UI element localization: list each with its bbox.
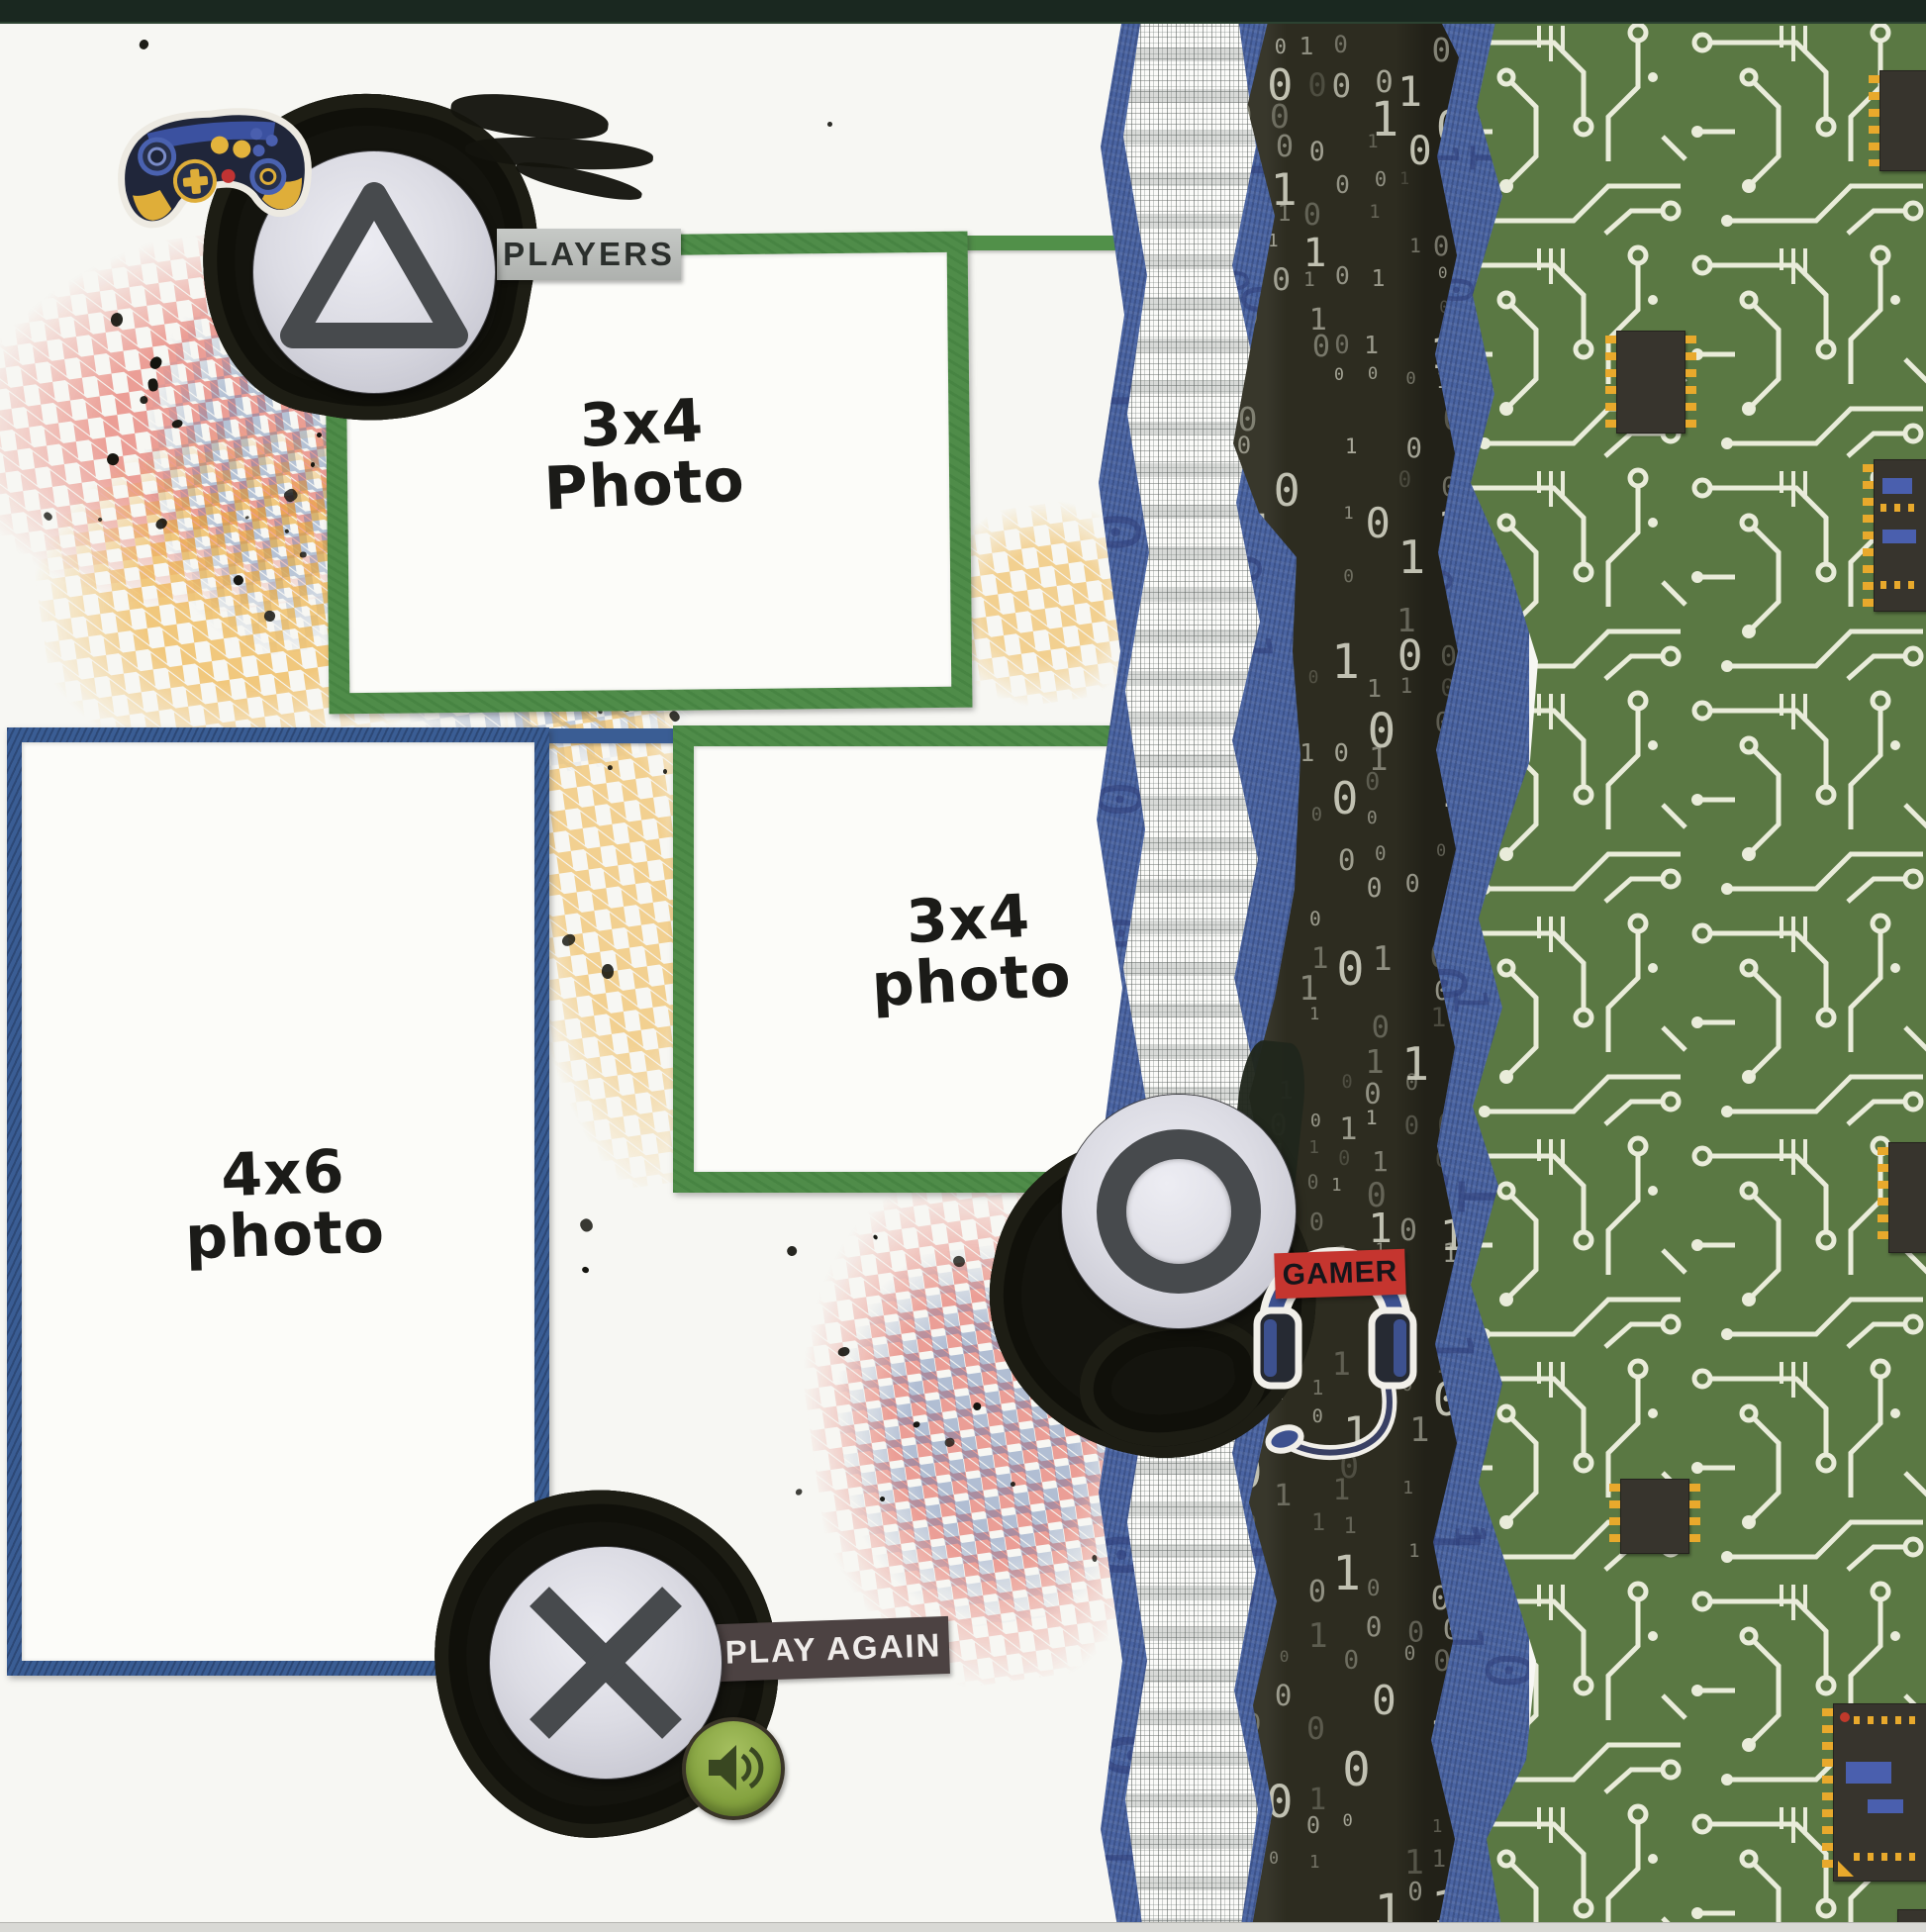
speaker-button (682, 1717, 785, 1820)
chip (1888, 1142, 1926, 1253)
photo-label-3x4-second: 3x4photo (799, 880, 1141, 1020)
play-again-tag-label: PLAY AGAIN (724, 1626, 942, 1672)
blue-ribbon (534, 728, 693, 743)
headphones-icon (1239, 1200, 1432, 1472)
x-button-icon (512, 1569, 700, 1757)
chip (1833, 1703, 1926, 1882)
page-bottom-edge (0, 1922, 1926, 1932)
speaker-icon (703, 1738, 764, 1799)
circle-button-icon (1097, 1129, 1261, 1294)
players-tag-label: PLAYERS (503, 236, 675, 273)
photo-label-3x4-top: 3x4Photo (472, 385, 814, 524)
chip (1616, 331, 1685, 434)
photo-mat-4x6: 4x6photo (7, 727, 549, 1676)
gamer-tag-label: GAMER (1282, 1255, 1398, 1293)
game-controller-icon (105, 85, 327, 253)
chip (1874, 459, 1926, 612)
gamer-tag: GAMER (1274, 1249, 1406, 1300)
players-tag: PLAYERS (497, 229, 681, 280)
green-ribbon (940, 236, 1138, 250)
page-top-edge (0, 0, 1926, 24)
chip (1620, 1479, 1689, 1554)
photo-label-4x6: 4x6photo (114, 1137, 454, 1273)
scrapbook-page: 3x4Photo 4x6photo 3x4photo 1011100101010… (0, 0, 1926, 1932)
chip (1879, 70, 1926, 171)
play-again-tag: PLAY AGAIN (717, 1616, 950, 1682)
x-button (490, 1547, 722, 1779)
